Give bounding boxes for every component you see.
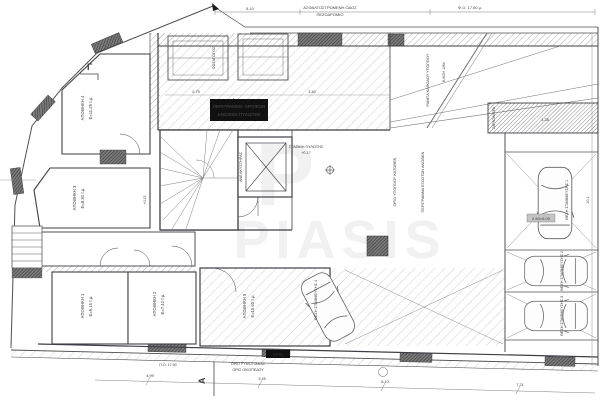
street-label-2: ΠΕΖΟΔΡΟΜΙΟ <box>316 12 343 17</box>
street-width-note: Φ.Ο. 17.50 μ. <box>458 5 482 10</box>
parking-badge: 2.50×5.00 <box>527 214 555 222</box>
room-d-area: Ε=7.42 τ.μ. <box>160 294 165 315</box>
room-b-name: ΑΠΟΘΗΚΗ 3 <box>72 185 77 210</box>
stair-core <box>160 130 238 230</box>
car-icon <box>525 299 588 332</box>
elevator-label: ΑΝΕΛΚΥΣΤΗΡΑΣ <box>239 151 243 182</box>
atrium-note-1: ΟΡΙΟ ΥΠΟΓΕΙΟΥ ΚΑΤΩΘΕΝ <box>393 157 397 206</box>
car-icon <box>525 254 588 287</box>
dim-in1: 2.75 <box>192 90 199 94</box>
parking-label-1: ΘΕΣΗ ΣΤΑΘΜΕΥΣΗΣ 1 <box>565 180 569 220</box>
dim-top1: 8.10 <box>246 7 253 11</box>
boundary-line-2: ΟΡΙΟ ΟΙΚΟΠΕΔΟΥ <box>232 368 264 372</box>
skylight-label: ΦΩΤΑΓΩΓΟΣ <box>212 46 216 69</box>
north-arrow-icon <box>212 3 219 11</box>
ramp-note-2: ΚΛΙΣΗ 18% <box>442 61 446 81</box>
exterior-stair <box>12 226 42 278</box>
parking-label-2: ΘΕΣΗ ΣΤΑΘΜΕΥΣΗΣ 2 <box>560 251 564 291</box>
parking-label-4: ΘΕΣΗ ΣΤΑΘΜΕΥΣΗΣ 4 <box>314 280 318 320</box>
room-a-name: ΑΠΟΘΗΚΗ 4 <box>80 95 85 120</box>
atrium-note-2: ΠΕΡΙΓΡΑΜΜΑ ΕΞΩΣΤΩΝ ΑΝΩΘΕΝ <box>421 151 425 212</box>
street-label-1: ΑΣΦΑΛΤΟΣΤΡΩΜΕΝΗ ΟΔΟΣ <box>303 5 357 10</box>
floor-plan-sheet: 2.50×5.00 Γ Α ΠΕΡΙΓΡΑΜΜΑ ΟΡΟΦΩΝ ΑΝΩΘΕΝ Π… <box>0 0 600 400</box>
outline-label-line2: ΑΝΩΘΕΝ ΠΥΛΩΤΗΣ <box>217 112 260 117</box>
dim-in2: 3.40 <box>308 90 315 94</box>
road-width-note: Π.Ο. 17.50 <box>159 363 176 367</box>
room-g-area: Ε=15.60 τ.μ. <box>250 294 255 317</box>
boundary-box-label: ΟΡΙΟ <box>273 352 283 357</box>
floor-plan-canvas: 2.50×5.00 Γ Α ΠΕΡΙΓΡΑΜΜΑ ΟΡΟΦΩΝ ΑΝΩΘΕΝ Π… <box>0 0 600 400</box>
level-cross-icon <box>325 165 335 175</box>
room-d-name: ΑΠΟΘΗΚΗ 2 <box>152 291 157 316</box>
room-c-name: ΑΠΟΘΗΚΗ 1 <box>80 293 85 318</box>
dim-b2: 3.45 <box>258 377 265 381</box>
section-a-label: Α <box>197 377 207 384</box>
dim-right1: 10.1 <box>586 196 590 203</box>
room-g-name: ΑΠΟΘΗΚΗ 5 <box>242 293 247 318</box>
room-a-area: Ε=11.25 τ.μ. <box>88 97 93 120</box>
section-gamma-label: Γ <box>87 62 93 72</box>
watermark: Ρ PIASIS <box>233 125 446 270</box>
room-c-area: Ε=9.15 τ.μ. <box>88 296 93 317</box>
outline-label-box: ΠΕΡΙΓΡΑΜΜΑ ΟΡΟΦΩΝ ΑΝΩΘΕΝ ΠΥΛΩΤΗΣ <box>210 99 268 121</box>
dim-b4: 7.21 <box>516 383 523 387</box>
planter-label: ΖΑΡΝΤΙΝΙΕΡΑ <box>492 106 496 129</box>
boundary-line-1: ΟΡΙΟ ΡΥΜΟΤΟΜΙΑΣ <box>231 362 266 366</box>
boundary-label-box: ΟΡΙΟ <box>266 350 290 358</box>
dim-b3: 6.10 <box>381 380 388 384</box>
parking-label-3: ΘΕΣΗ ΣΤΑΘΜΕΥΣΗΣ 3 <box>560 296 564 336</box>
dim-b1: 4.99 <box>146 374 153 378</box>
corridor-level: +0.15 <box>143 196 147 205</box>
room-b-area: Ε=8.30 τ.μ. <box>80 188 85 209</box>
watermark-text: PIASIS <box>233 210 446 270</box>
outline-label-line1: ΠΕΡΙΓΡΑΜΜΑ ΟΡΟΦΩΝ <box>213 104 266 109</box>
ramp-note-1: ΡΑΜΠΑ ΚΑΘΟΔΟΥ ΥΠΟΓΕΙΟΥ <box>426 53 430 106</box>
parking-badge-label: 2.50×5.00 <box>532 216 551 221</box>
dim-planter: 4.38 <box>541 118 548 122</box>
